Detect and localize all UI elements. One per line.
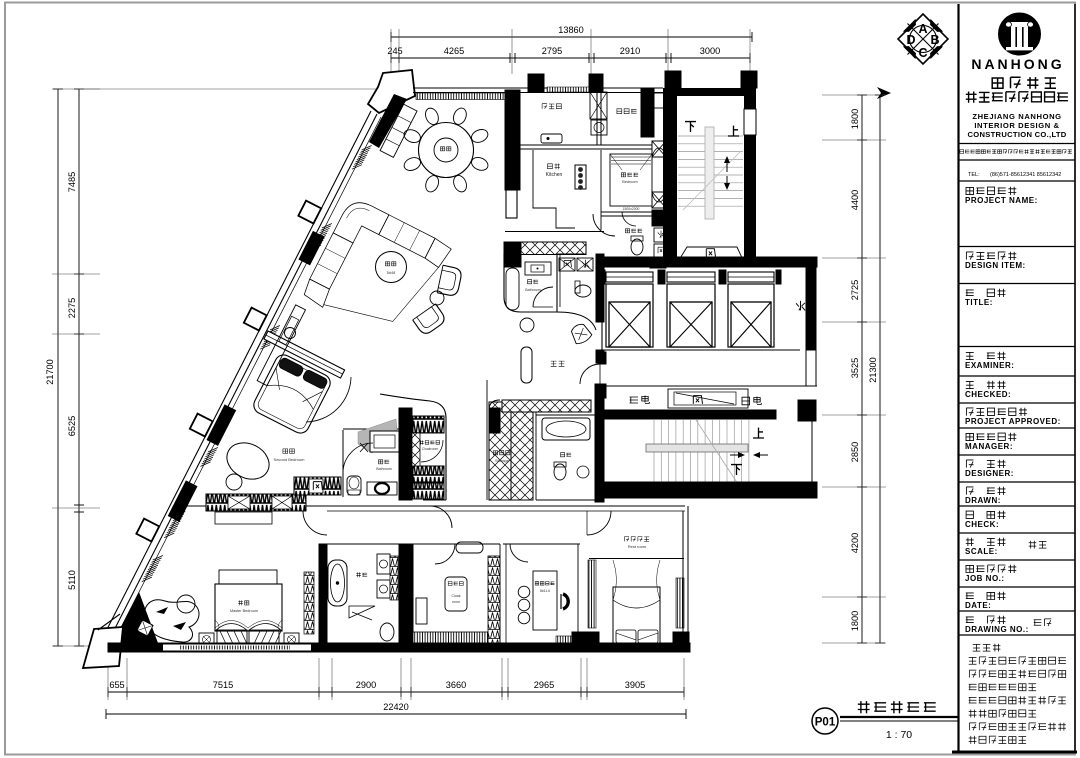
svg-text:DESIGN ITEM:: DESIGN ITEM:: [965, 261, 1026, 270]
svg-text:5110: 5110: [67, 570, 77, 590]
svg-text:4400: 4400: [850, 190, 860, 210]
svg-text:DATE:: DATE:: [965, 601, 991, 610]
svg-text:2910: 2910: [620, 46, 640, 56]
svg-text:Second Bedroom: Second Bedroom: [274, 457, 306, 462]
svg-text:5#48: 5#48: [387, 271, 395, 275]
svg-text:B: B: [930, 33, 939, 47]
svg-text:22420: 22420: [383, 702, 409, 712]
svg-text:ZHEJIANG NANHONG: ZHEJIANG NANHONG: [972, 112, 1061, 121]
svg-text:Bathroom: Bathroom: [525, 288, 541, 292]
svg-text:2725: 2725: [850, 280, 860, 300]
svg-text:2900: 2900: [356, 680, 376, 690]
svg-text:2965: 2965: [534, 680, 554, 690]
svg-text:Cloak: Cloak: [452, 594, 461, 598]
svg-text:PROJECT NAME:: PROJECT NAME:: [965, 196, 1038, 205]
svg-text:EXAMINER:: EXAMINER:: [965, 361, 1014, 370]
svg-text:1800: 1800: [850, 611, 860, 631]
svg-text:Rest room: Rest room: [628, 544, 647, 549]
svg-text:1800: 1800: [850, 109, 860, 129]
svg-text:D: D: [906, 33, 915, 47]
svg-text:Kitchen: Kitchen: [546, 172, 563, 178]
svg-text:Cloakroom: Cloakroom: [422, 447, 439, 451]
svg-text:Master Bedroom: Master Bedroom: [230, 609, 258, 613]
svg-text:DESIGNER:: DESIGNER:: [965, 469, 1014, 478]
svg-text:CHECK:: CHECK:: [965, 520, 999, 529]
svg-text:CONSTRUCTION CO.,LTD: CONSTRUCTION CO.,LTD: [967, 130, 1066, 139]
svg-text:1 : 70: 1 : 70: [886, 729, 912, 741]
svg-text:3000: 3000: [700, 46, 720, 56]
svg-text:4200: 4200: [850, 533, 860, 553]
svg-text:PROJECT APPROVED:: PROJECT APPROVED:: [965, 417, 1061, 426]
svg-text:13860: 13860: [558, 25, 584, 35]
svg-text:TEL:: TEL:: [968, 172, 980, 178]
svg-text:4265: 4265: [444, 46, 464, 56]
svg-text:655: 655: [109, 680, 124, 690]
svg-text:Storage: Storage: [495, 458, 510, 463]
svg-text:3905: 3905: [625, 680, 645, 690]
svg-text:2275: 2275: [67, 298, 77, 318]
svg-text:Bedroom: Bedroom: [622, 180, 637, 184]
svg-text:JOB NO.:: JOB NO.:: [965, 574, 1005, 583]
svg-text:NANHONG: NANHONG: [971, 56, 1064, 72]
svg-text:2850: 2850: [850, 442, 860, 462]
svg-text:3660: 3660: [446, 680, 466, 690]
svg-text:8#11.6: 8#11.6: [540, 589, 550, 593]
svg-text:DRAWN:: DRAWN:: [965, 496, 1001, 505]
svg-text:C: C: [918, 46, 927, 60]
svg-text:7485: 7485: [67, 172, 77, 192]
svg-text:SCALE:: SCALE:: [965, 547, 998, 556]
svg-text:A: A: [918, 22, 927, 36]
svg-text:21300: 21300: [868, 357, 878, 383]
svg-text:6525: 6525: [67, 416, 77, 436]
svg-text:1500x2000: 1500x2000: [623, 207, 640, 211]
svg-text:21700: 21700: [45, 359, 55, 385]
svg-text:room: room: [452, 600, 460, 604]
svg-text:2795: 2795: [542, 46, 562, 56]
svg-text:DRAWING NO.:: DRAWING NO.:: [965, 625, 1029, 634]
svg-text:TITLE:: TITLE:: [965, 298, 993, 307]
svg-text:P01: P01: [815, 717, 836, 729]
svg-text:3525: 3525: [850, 358, 860, 378]
svg-text:CHECKED:: CHECKED:: [965, 390, 1011, 399]
svg-text:245: 245: [387, 46, 402, 56]
svg-text:INTERIOR DESIGN &: INTERIOR DESIGN &: [974, 121, 1059, 130]
svg-text:7515: 7515: [213, 680, 233, 690]
svg-text:Bathroom: Bathroom: [376, 467, 392, 471]
svg-text:MANAGER:: MANAGER:: [965, 442, 1013, 451]
svg-text:(86)571-85612341 85612342: (86)571-85612341 85612342: [990, 172, 1061, 178]
